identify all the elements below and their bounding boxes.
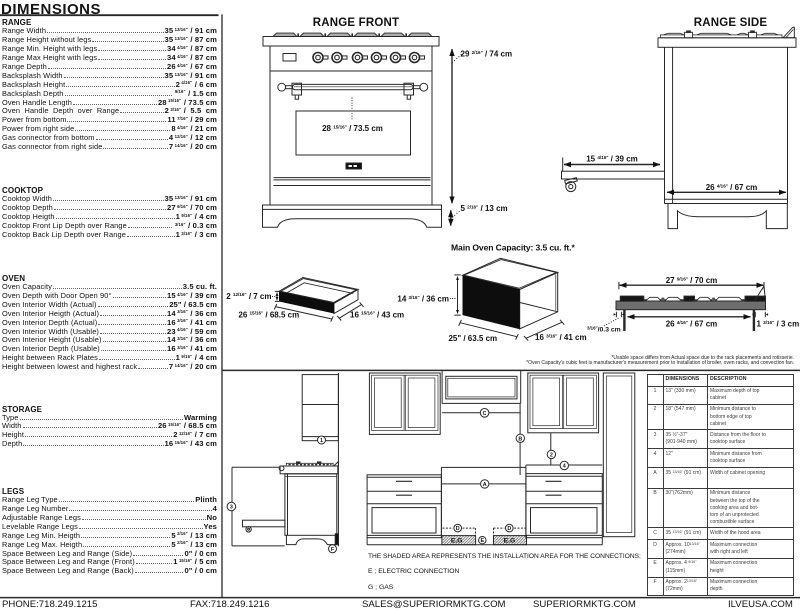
svg-text:2 12/16" / 7 cm: 2 12/16" / 7 cm	[226, 292, 271, 301]
svg-text:E: E	[480, 538, 484, 544]
svg-text:29 2/16" / 74 cm: 29 2/16" / 74 cm	[461, 50, 513, 59]
svg-text:B: B	[518, 436, 522, 442]
svg-text:4: 4	[563, 464, 566, 470]
svg-text:RANGE FRONT: RANGE FRONT	[313, 17, 400, 29]
svg-text:C: C	[483, 411, 487, 417]
svg-text:28 15/16" / 73.5 cm: 28 15/16" / 73.5 cm	[322, 124, 383, 133]
svg-text:1 3/16" / 3 cm: 1 3/16" / 3 cm	[757, 320, 800, 329]
svg-text:D: D	[507, 526, 511, 532]
svg-text:14 3/16" / 36 cm: 14 3/16" / 36 cm	[397, 295, 449, 304]
svg-text:16 3/16" / 41 cm: 16 3/16" / 41 cm	[535, 333, 587, 342]
svg-text:2: 2	[550, 452, 553, 458]
svg-text:5 2/16" / 13 cm: 5 2/16" / 13 cm	[461, 204, 508, 213]
svg-text:E.G: E.G	[451, 538, 463, 545]
svg-text:RANGE SIDE: RANGE SIDE	[694, 17, 768, 29]
svg-text:A: A	[483, 482, 487, 488]
svg-text:D: D	[456, 526, 460, 532]
svg-text:1: 1	[320, 438, 323, 444]
svg-text:15 4/16" / 39 cm: 15 4/16" / 39 cm	[586, 155, 638, 164]
svg-text:25" / 63.5 cm: 25" / 63.5 cm	[448, 334, 497, 343]
svg-text:3/16"/0.3 cm: 3/16"/0.3 cm	[587, 326, 621, 334]
svg-text:E.G: E.G	[504, 538, 516, 545]
svg-text:26 4/16" / 67 cm: 26 4/16" / 67 cm	[706, 183, 758, 192]
svg-text:27 9/16" / 70 cm: 27 9/16" / 70 cm	[666, 276, 718, 285]
svg-text:26 15/16" / 68.5 cm: 26 15/16" / 68.5 cm	[238, 310, 299, 319]
svg-text:16 15/16" / 43 cm: 16 15/16" / 43 cm	[350, 310, 404, 319]
svg-text:Main Oven Capacity: 3.5 cu. ft: Main Oven Capacity: 3.5 cu. ft.*	[451, 242, 575, 252]
svg-text:26 4/16" / 67 cm: 26 4/16" / 67 cm	[666, 320, 718, 329]
svg-text:3: 3	[230, 505, 233, 511]
